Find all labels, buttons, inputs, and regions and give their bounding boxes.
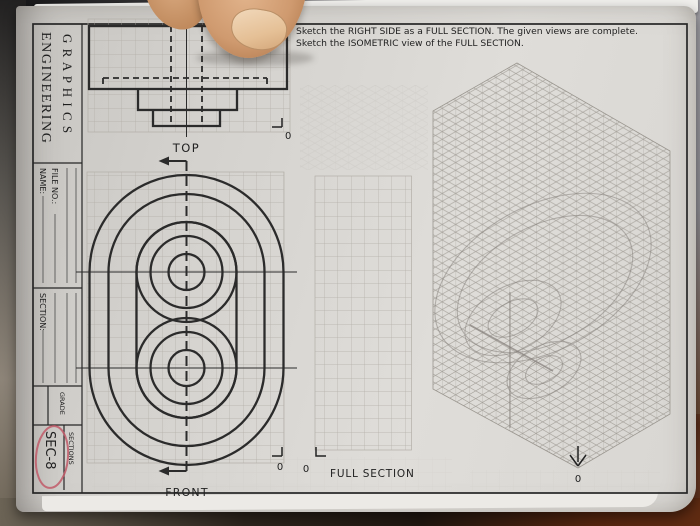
isometric-origin: 0 [575, 474, 581, 485]
isometric-grid [433, 63, 670, 468]
full-section-origin: 0 [303, 464, 309, 475]
section-number-value: SEC-8 [42, 431, 57, 470]
instruction-line-2: Sketch the ISOMETRIC view of the FULL SE… [296, 38, 524, 49]
name-label: NAME: [38, 168, 47, 194]
grade-label: GRADE [58, 392, 66, 415]
sections-label: SECTIONS [67, 432, 75, 465]
front-view-origin: 0 [277, 462, 283, 473]
course-title-line2: G R A P H I C S [60, 34, 75, 134]
front-view-label: FRONT [165, 486, 209, 499]
section-label: SECTION: [38, 293, 47, 331]
title-block: ENGINEERING G R A P H I C S NAME: FILE N… [33, 24, 82, 493]
full-section-area: 0 FULL SECTION [303, 176, 415, 480]
file-no-label: FILE NO.: [50, 168, 59, 204]
top-view-label: TOP [172, 141, 201, 155]
top-view-origin: 0 [285, 131, 291, 142]
isometric-area: 0 [406, 63, 680, 485]
photo-scene: ENGINEERING G R A P H I C S NAME: FILE N… [0, 0, 700, 526]
front-view: 0 FRONT [76, 157, 297, 500]
worksheet-drawing: ENGINEERING G R A P H I C S NAME: FILE N… [0, 0, 700, 526]
instructions: Sketch the RIGHT SIDE as a FULL SECTION.… [296, 26, 638, 49]
course-title-line1: ENGINEERING [38, 32, 53, 144]
full-section-label: FULL SECTION [330, 468, 415, 480]
full-section-grid [315, 176, 412, 450]
instruction-line-1: Sketch the RIGHT SIDE as a FULL SECTION.… [296, 26, 638, 37]
cutting-plane-arrow-top [159, 157, 170, 166]
